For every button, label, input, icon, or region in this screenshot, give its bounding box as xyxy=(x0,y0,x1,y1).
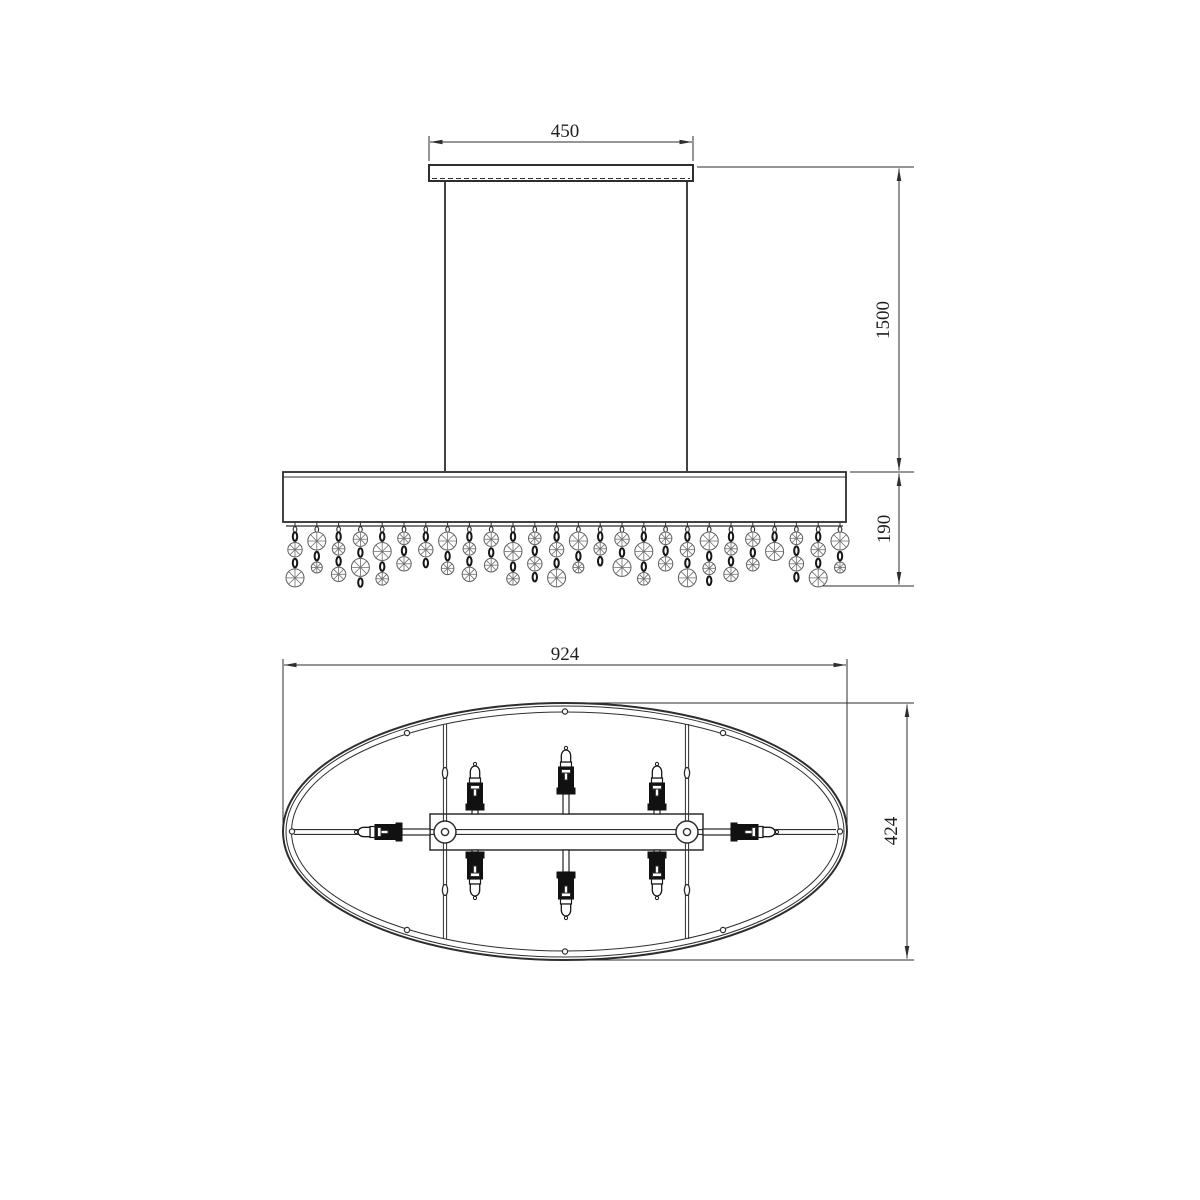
socket-flange xyxy=(648,852,666,858)
rim-hole xyxy=(404,730,409,735)
socket-highlight xyxy=(653,786,662,790)
hub-center-hole xyxy=(441,828,448,835)
crystal-bead xyxy=(638,573,651,586)
crystal-bead xyxy=(529,532,542,545)
rim-hole xyxy=(404,927,409,932)
crystal-strand xyxy=(724,522,738,582)
crystal-bead xyxy=(462,567,476,581)
crystal-bead xyxy=(615,532,629,546)
crystal-bead xyxy=(351,558,369,576)
crystal-strand xyxy=(308,522,326,573)
crystal-strand xyxy=(397,522,411,571)
crystal-bead xyxy=(353,532,367,546)
crystal-bead xyxy=(308,532,326,550)
crystal-strand xyxy=(528,522,542,581)
crystal-bead xyxy=(678,569,696,587)
socket-flange xyxy=(466,804,484,810)
crystal-bead xyxy=(573,562,584,573)
bulb-tip xyxy=(473,762,476,765)
bulb-dome xyxy=(652,766,661,778)
crystal-strand xyxy=(658,522,672,571)
side-view: 450 1500 190 xyxy=(283,121,914,587)
bulb-neck-ring xyxy=(758,827,763,838)
dim-drop-height: 1500 xyxy=(697,167,914,471)
socket-highlight xyxy=(562,893,571,897)
socket-highlight xyxy=(564,773,567,780)
crystal-bead xyxy=(811,543,825,557)
strut-connector xyxy=(684,768,689,779)
bulb-tip xyxy=(655,762,658,765)
lamp-socket xyxy=(354,823,430,841)
crystal-bead xyxy=(789,557,803,571)
crystal-bead xyxy=(835,562,846,573)
hub-right xyxy=(676,821,698,843)
lamp-socket xyxy=(466,850,484,900)
hub-left xyxy=(434,821,456,843)
crystal-strand xyxy=(548,522,566,587)
crystal-bead xyxy=(397,557,411,571)
dim-label-drop-height: 1500 xyxy=(873,301,894,339)
socket-highlight xyxy=(381,830,388,833)
lamp-socket xyxy=(648,850,666,900)
crystal-bead xyxy=(831,532,849,550)
crystal-bead xyxy=(484,558,498,572)
crystal-bead xyxy=(463,543,476,556)
center-mounting-bar xyxy=(430,814,703,850)
crystal-bead xyxy=(373,543,391,561)
crystal-strand xyxy=(746,522,760,571)
lamp-socket xyxy=(648,762,666,814)
bulb-neck-ring xyxy=(652,778,663,783)
socket-stem xyxy=(563,850,569,872)
crystal-bead xyxy=(419,543,433,557)
socket-flange xyxy=(557,788,575,794)
bulb-dome xyxy=(652,884,661,896)
bulb-tip xyxy=(564,746,567,749)
lamp-socket xyxy=(466,762,484,814)
crystal-strand xyxy=(789,522,803,581)
crystal-strand xyxy=(766,522,784,561)
socket-highlight xyxy=(653,873,662,877)
socket-highlight xyxy=(473,866,476,873)
technical-drawing-canvas: 450 1500 190 xyxy=(0,0,1200,1200)
bulb-neck-ring xyxy=(470,879,481,884)
bulb-dome xyxy=(358,827,370,836)
crystal-strand xyxy=(504,522,522,585)
crystal-strand xyxy=(286,522,304,587)
socket-flange xyxy=(466,852,484,858)
bulb-dome xyxy=(561,904,570,916)
crystal-strand xyxy=(484,522,498,572)
socket-flange xyxy=(648,804,666,810)
crystal-bead xyxy=(747,558,760,571)
crystal-bead xyxy=(376,573,389,586)
rim-hole xyxy=(837,829,842,834)
crystal-bead xyxy=(549,543,563,557)
crystal-strand xyxy=(331,522,345,582)
crystal-bead xyxy=(332,543,345,556)
socket-flange xyxy=(557,872,575,878)
crystal-bead xyxy=(507,573,520,586)
crystal-strand xyxy=(594,522,607,566)
crystal-bead xyxy=(659,532,672,545)
crystal-bead xyxy=(504,543,522,561)
bulb-dome xyxy=(470,884,479,896)
crystal-strand xyxy=(831,522,849,573)
crystal-bead xyxy=(766,543,784,561)
shade-body xyxy=(283,472,846,522)
crystal-bead xyxy=(680,543,694,557)
socket-highlight xyxy=(564,886,567,893)
dim-label-fixture-width: 424 xyxy=(881,816,902,845)
socket-highlight xyxy=(752,828,756,837)
crystal-strand xyxy=(678,522,696,587)
crystal-bead xyxy=(569,532,587,550)
socket-highlight xyxy=(655,789,658,796)
crystal-bead xyxy=(746,532,760,546)
socket-stem xyxy=(703,829,731,835)
crystal-bead xyxy=(703,562,716,575)
bulb-dome xyxy=(561,750,570,762)
bulb-neck-ring xyxy=(561,899,572,904)
crystal-bead xyxy=(288,543,302,557)
crystal-bead xyxy=(548,569,566,587)
crystal-strand xyxy=(462,522,476,582)
bulb-dome xyxy=(763,827,775,836)
socket-highlight xyxy=(473,789,476,796)
crystal-strand xyxy=(439,522,457,575)
bulb-tip xyxy=(473,896,476,899)
crystal-bead xyxy=(398,532,411,545)
crystal-bead xyxy=(594,543,607,556)
crystal-bead xyxy=(809,569,827,587)
crystal-strand xyxy=(419,522,433,567)
socket-highlight xyxy=(471,786,480,790)
bulb-tip xyxy=(564,916,567,919)
bulb-neck-ring xyxy=(652,879,663,884)
crystal-bead xyxy=(441,562,454,575)
socket-flange xyxy=(396,823,402,841)
rim-hole xyxy=(289,829,294,834)
crystal-strand xyxy=(613,522,631,576)
crystal-strand xyxy=(635,522,653,585)
crystal-bead xyxy=(658,557,672,571)
crystal-bead xyxy=(286,569,304,587)
dim-label-fixture-length: 924 xyxy=(551,644,580,665)
lamp-socket xyxy=(557,746,575,814)
chandelier-dimension-drawing: 450 1500 190 xyxy=(0,0,1200,1200)
strut-connector xyxy=(442,768,447,779)
crystal-strand xyxy=(373,522,391,585)
strut-connector xyxy=(442,885,447,896)
bulb-neck-ring xyxy=(561,762,572,767)
rim-hole xyxy=(562,709,567,714)
bulb-tip xyxy=(775,830,778,833)
bulb-neck-ring xyxy=(370,827,375,838)
plan-view: 924 424 xyxy=(283,644,914,960)
lamp-socket xyxy=(703,823,779,841)
crystal-bead xyxy=(528,557,542,571)
socket-highlight xyxy=(745,830,752,833)
crystal-bead xyxy=(484,532,498,546)
lamp-sockets xyxy=(354,746,778,919)
dim-label-canopy-width: 450 xyxy=(551,121,580,142)
crystal-strands xyxy=(286,522,849,587)
bulb-tip xyxy=(354,830,357,833)
lamp-socket xyxy=(557,850,575,920)
socket-stem xyxy=(654,810,660,814)
crystal-bead xyxy=(725,543,738,556)
crystal-strand xyxy=(351,522,369,587)
crystal-bead xyxy=(724,567,738,581)
socket-highlight xyxy=(378,828,382,837)
socket-stem xyxy=(402,829,430,835)
bulb-dome xyxy=(470,766,479,778)
socket-highlight xyxy=(655,866,658,873)
socket-flange xyxy=(731,823,737,841)
crystal-bead xyxy=(311,562,322,573)
dim-label-shade-height: 190 xyxy=(874,515,895,544)
crystal-bead xyxy=(439,532,457,550)
crystal-bead xyxy=(790,532,803,545)
dim-canopy-width: 450 xyxy=(429,121,693,161)
crystal-bead xyxy=(635,543,653,561)
crystal-bead xyxy=(700,532,718,550)
crystal-bead xyxy=(613,558,631,576)
socket-stem xyxy=(563,794,569,814)
rim-hole xyxy=(720,730,725,735)
socket-stem xyxy=(472,810,478,814)
crystal-strand xyxy=(809,522,827,587)
crystal-bead xyxy=(331,567,345,581)
crystal-strand xyxy=(569,522,587,573)
socket-highlight xyxy=(562,770,571,774)
rim-hole xyxy=(562,949,567,954)
hub-center-hole xyxy=(683,828,690,835)
bulb-neck-ring xyxy=(470,778,481,783)
socket-highlight xyxy=(471,873,480,877)
strut-connector xyxy=(684,885,689,896)
crystal-strand xyxy=(700,522,718,585)
rim-hole xyxy=(720,927,725,932)
bulb-tip xyxy=(655,896,658,899)
